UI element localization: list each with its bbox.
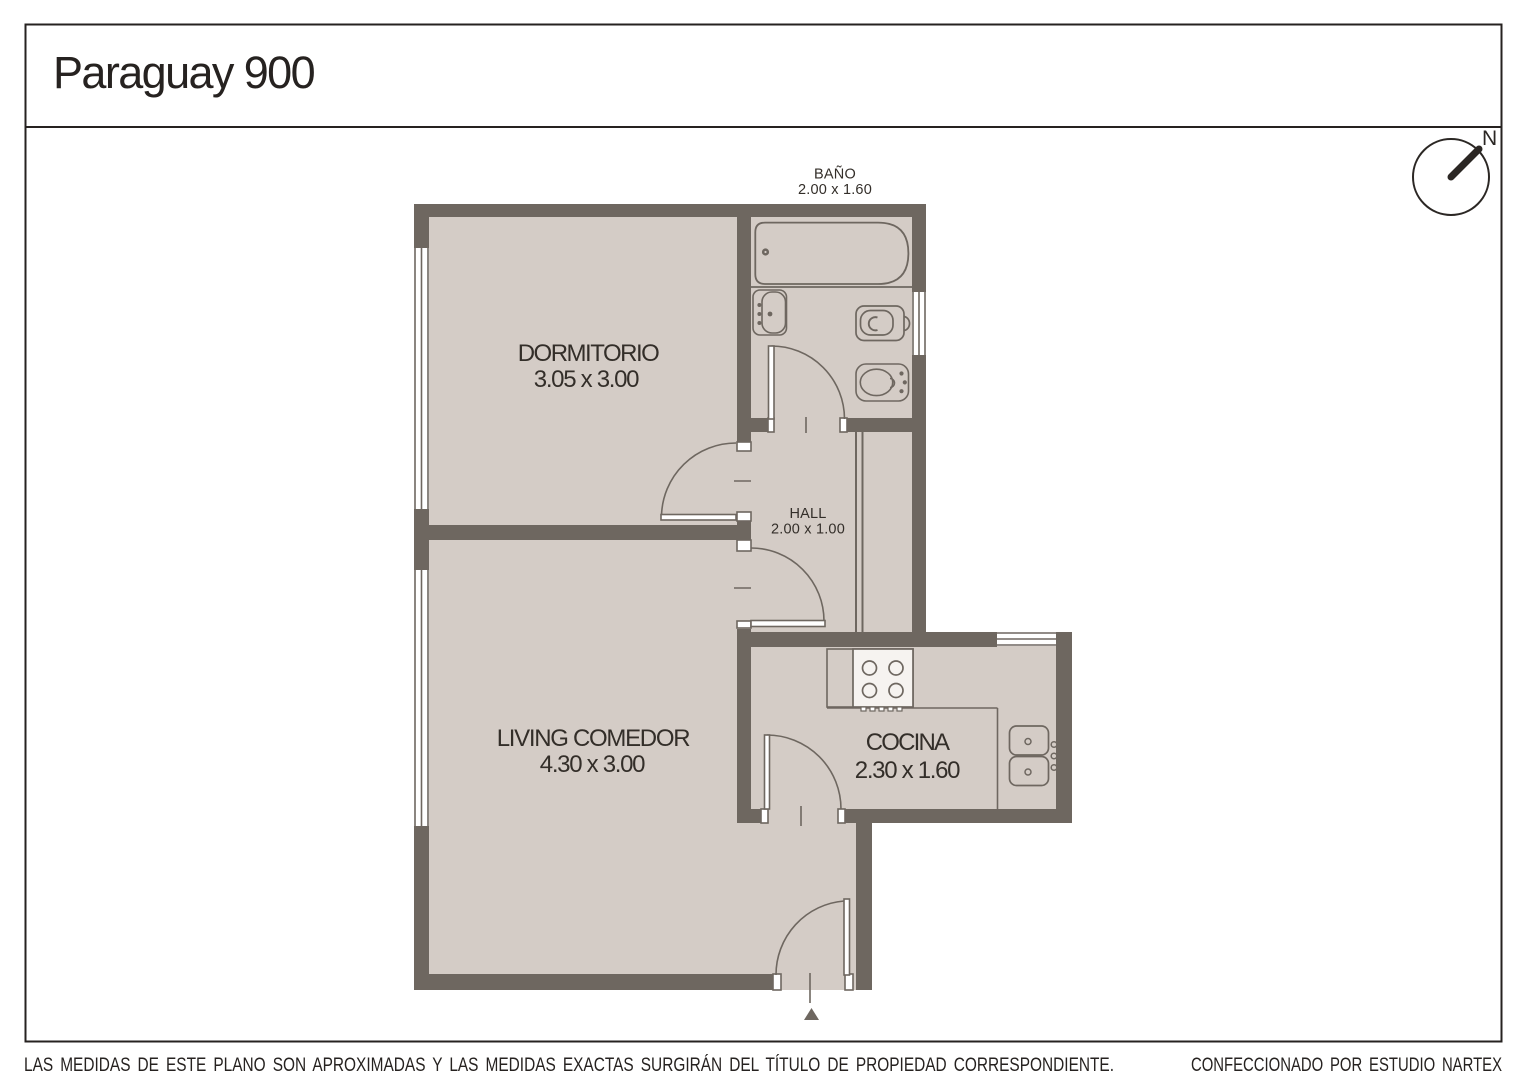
svg-text:2.30 x 1.60: 2.30 x 1.60 — [855, 757, 960, 784]
svg-text:DORMITORIO: DORMITORIO — [518, 340, 659, 367]
svg-text:2.00 x 1.60: 2.00 x 1.60 — [798, 182, 872, 198]
svg-text:LIVING COMEDOR: LIVING COMEDOR — [497, 725, 690, 752]
svg-text:HALL: HALL — [789, 506, 826, 522]
svg-text:LAS MEDIDAS DE ESTE PLANO SON: LAS MEDIDAS DE ESTE PLANO SON APROXIMADA… — [24, 1053, 1114, 1076]
svg-text:4.30 x 3.00: 4.30 x 3.00 — [540, 751, 645, 778]
svg-text:COCINA: COCINA — [866, 729, 950, 756]
svg-text:N: N — [1482, 127, 1497, 150]
svg-text:3.05 x 3.00: 3.05 x 3.00 — [534, 366, 639, 393]
svg-text:CONFECCIONADO POR ESTUDIO NART: CONFECCIONADO POR ESTUDIO NARTEX — [1191, 1054, 1502, 1076]
svg-text:2.00 x 1.00: 2.00 x 1.00 — [771, 522, 845, 538]
svg-text:BAÑO: BAÑO — [814, 166, 856, 183]
svg-text:Paraguay 900: Paraguay 900 — [53, 47, 315, 98]
